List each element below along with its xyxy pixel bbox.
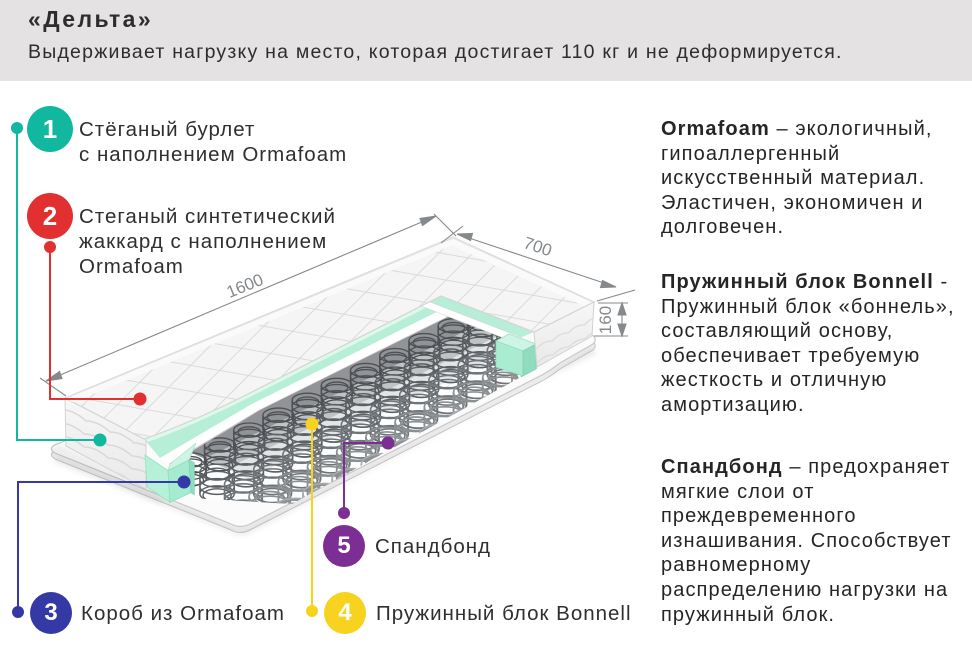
svg-text:700: 700	[521, 233, 554, 260]
svg-text:160: 160	[596, 306, 615, 334]
